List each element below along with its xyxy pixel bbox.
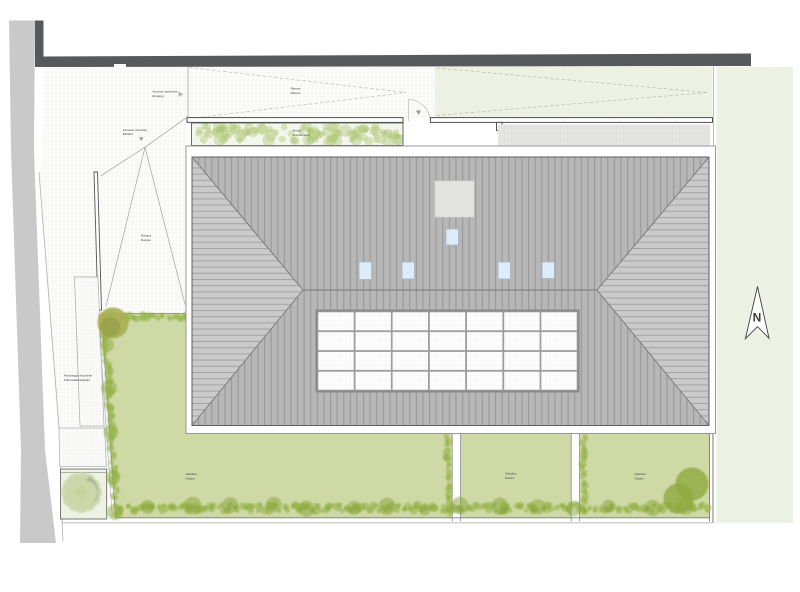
svg-text:N: N <box>753 311 762 325</box>
svg-text:Giardino: Giardino <box>505 472 517 476</box>
svg-text:Garten: Garten <box>505 476 515 480</box>
svg-text:Aiuola: Aiuola <box>293 128 302 132</box>
svg-text:Garten: Garten <box>186 477 196 481</box>
svg-text:Staudenbeet: Staudenbeet <box>293 133 310 137</box>
svg-text:Giardino: Giardino <box>635 472 647 476</box>
svg-text:Einfahrt: Einfahrt <box>123 132 134 136</box>
svg-text:Accesso veicolare: Accesso veicolare <box>123 128 148 132</box>
svg-text:Rampa: Rampa <box>291 86 301 90</box>
svg-text:Parcheggio biciclette: Parcheggio biciclette <box>64 373 92 377</box>
svg-text:Giardino: Giardino <box>186 472 198 476</box>
svg-text:Rampe: Rampe <box>141 238 151 242</box>
svg-text:Garten: Garten <box>635 477 645 481</box>
svg-text:Rampa: Rampa <box>141 234 151 238</box>
svg-text:Accesso pedonale: Accesso pedonale <box>153 89 178 93</box>
svg-text:Fahrradabstellplatz: Fahrradabstellplatz <box>64 378 90 382</box>
svg-text:Eingang: Eingang <box>153 94 164 98</box>
svg-text:Rampe: Rampe <box>291 91 301 95</box>
